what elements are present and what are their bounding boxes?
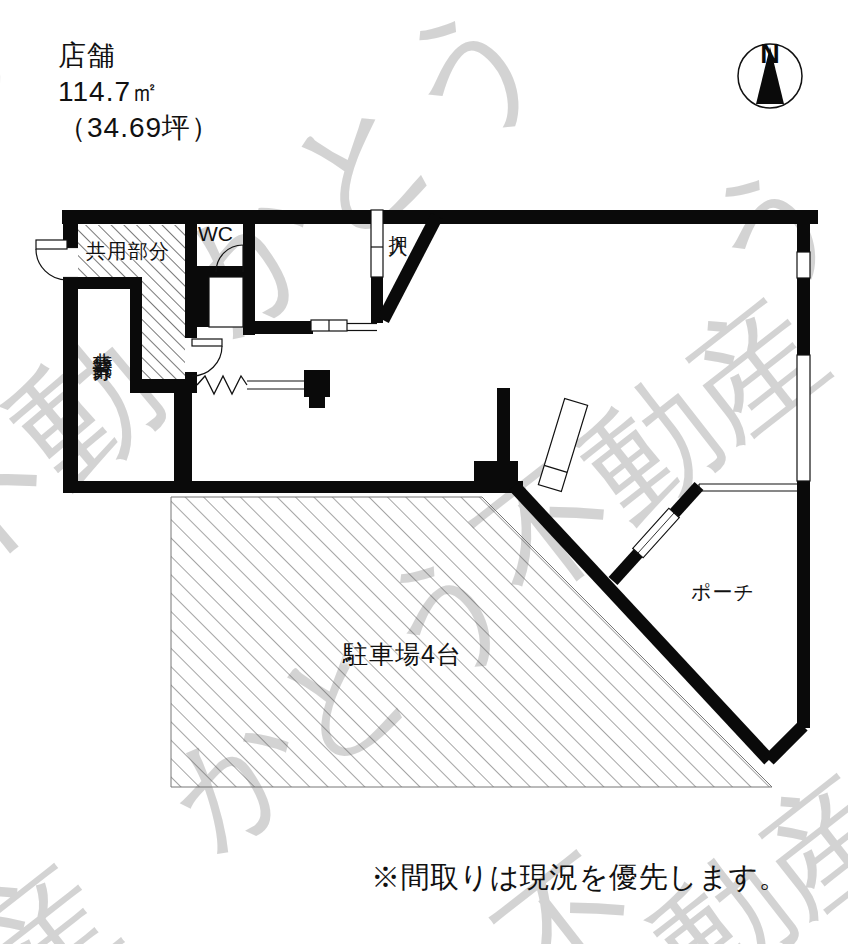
wall-nonrental-right [174,393,192,493]
wall-mid [497,388,510,465]
wall-bottom [63,481,523,493]
north-compass: N [738,39,802,108]
zigzag-partition [197,376,247,394]
title-block: 店舗 114.7㎡ （34.69坪） [58,38,220,146]
area-m2: 114.7㎡ [58,74,220,110]
room-label-non-rental: 非賃貸部分 [90,337,117,347]
fixture-basin [209,277,243,327]
wall-right-lower [797,481,810,728]
wall-right-2 [797,278,810,355]
floorplan-note: ※間取りは現況を優先します。 [371,858,788,898]
room-label-closet: 押入 [385,220,411,224]
room-label-wc: WC [198,222,233,246]
counter-block [304,370,330,397]
watermark-text: う [0,0,52,142]
door-leaf-corridor [192,339,222,346]
door-leaf-left [36,240,67,249]
room-label-porch: ポーチ [691,579,755,606]
wall-below-door [185,372,197,393]
door-arc-corridor [192,346,222,376]
wall-pillar [193,266,210,327]
window-right-long [797,355,810,481]
room-label-common-area: 共用部分 [86,238,170,265]
wall-column-left [130,277,142,381]
parking-area [171,497,772,787]
window-right-small [797,252,810,278]
watermark-text: 産 [0,837,140,944]
entry-pillar [474,461,518,491]
room-label-parking: 駐車場4台 [343,638,462,671]
wall-centerroom-bottom [247,321,313,334]
area-tsubo: （34.69坪） [58,110,220,146]
door-arc-left [36,249,67,280]
property-type: 店舗 [58,38,220,74]
wall-centerroom-left [243,210,255,335]
sliding-door-closet [371,210,383,277]
floorplan-page: かとう 不動 かとう不動産 動産 う 産 不 う [0,0,848,944]
wall-corner-cut [769,726,803,760]
door-gap-left [63,247,78,278]
north-label: N [760,39,780,69]
wall-left-lower [63,278,78,493]
counter-block-step [309,397,325,408]
wall-right-1 [797,210,810,252]
